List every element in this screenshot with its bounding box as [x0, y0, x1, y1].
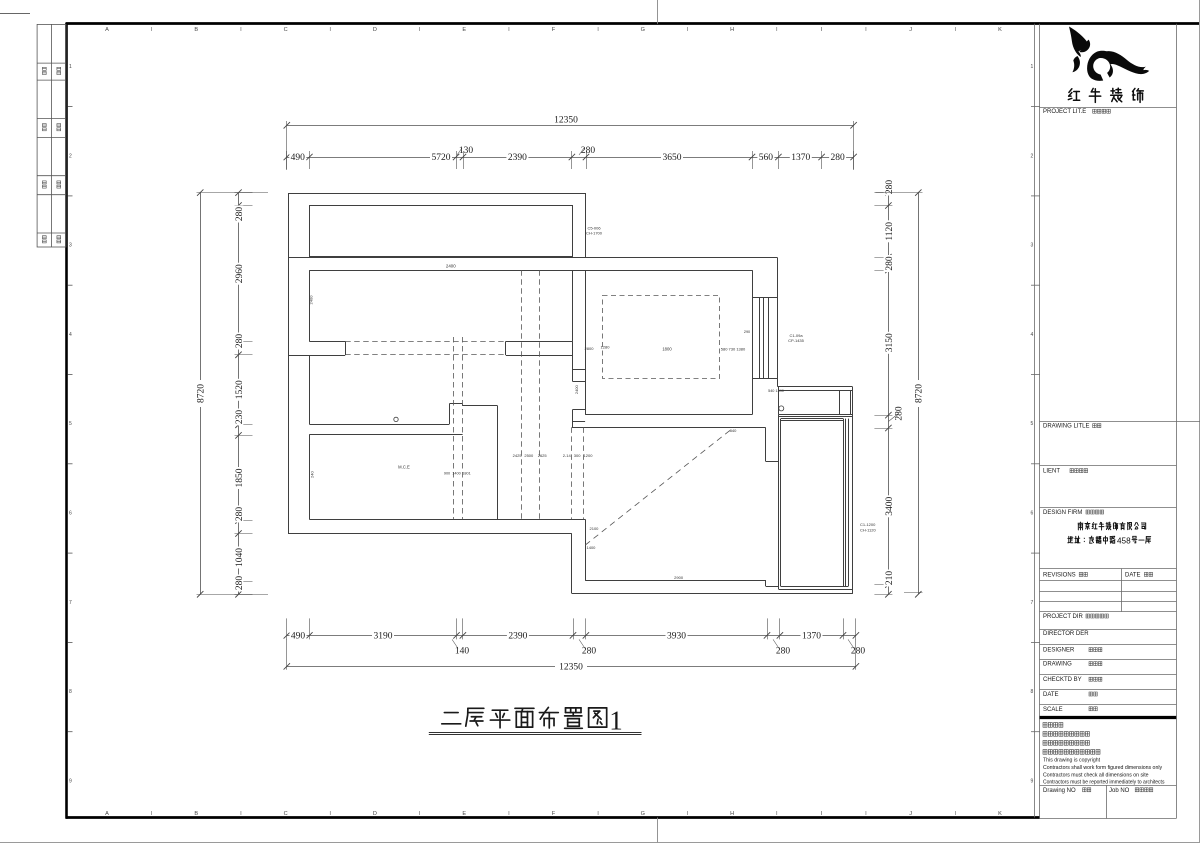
svg-text:F: F [552, 811, 556, 817]
svg-text:2390: 2390 [508, 632, 527, 642]
svg-text:1200: 1200 [584, 453, 594, 458]
svg-text:8720: 8720 [197, 384, 207, 403]
svg-text:6: 6 [69, 511, 72, 517]
svg-text:J: J [909, 811, 912, 817]
svg-text:2: 2 [1031, 153, 1034, 159]
svg-text:4: 4 [69, 332, 72, 338]
svg-text:2100: 2100 [590, 526, 600, 531]
svg-text:Contractors must be reported i: Contractors must be reported immediately… [1043, 780, 1165, 786]
svg-text:8720: 8720 [915, 384, 925, 403]
svg-text:I: I [240, 811, 241, 817]
svg-text:9: 9 [1031, 778, 1034, 784]
svg-text:DATE: DATE [1125, 572, 1141, 578]
svg-text:CH-1120: CH-1120 [860, 528, 876, 533]
svg-text:280: 280 [885, 256, 895, 271]
svg-text:3150: 3150 [885, 333, 895, 352]
svg-text:I: I [419, 27, 420, 33]
svg-text:2400: 2400 [446, 263, 456, 268]
svg-text:4: 4 [1031, 332, 1034, 338]
svg-text:490: 490 [291, 153, 306, 163]
svg-text:I: I [597, 811, 598, 817]
svg-text:I: I [597, 27, 598, 33]
svg-text:5: 5 [1031, 421, 1034, 427]
svg-text:1040: 1040 [235, 548, 245, 567]
svg-text:8: 8 [1031, 689, 1034, 695]
svg-text:I: I [240, 27, 241, 33]
svg-text:Contractors shall work form fi: Contractors shall work form figured dime… [1043, 765, 1162, 771]
svg-text:I: I [776, 811, 777, 817]
svg-text:2900: 2900 [674, 575, 684, 580]
svg-text:2-14: 2-14 [563, 453, 572, 458]
svg-text:C: C [284, 27, 288, 33]
svg-text:280: 280 [851, 646, 866, 656]
svg-text:This drawing is copyright: This drawing is copyright [1043, 758, 1101, 764]
svg-text:1520: 1520 [235, 380, 245, 399]
svg-text:K: K [998, 811, 1002, 817]
svg-text:PROJECT LIT.E: PROJECT LIT.E [1043, 109, 1086, 115]
svg-text:5: 5 [69, 421, 72, 427]
svg-text:900: 900 [444, 472, 450, 476]
svg-text:1: 1 [1031, 64, 1034, 70]
svg-text:290: 290 [744, 330, 750, 334]
svg-text:C1-1200: C1-1200 [860, 522, 876, 527]
svg-text:I: I [865, 27, 866, 33]
svg-text:210: 210 [885, 571, 895, 586]
svg-text:280: 280 [830, 153, 845, 163]
svg-text:1850: 1850 [235, 468, 245, 487]
svg-text:280: 280 [235, 334, 245, 349]
svg-text:1370: 1370 [802, 632, 821, 642]
svg-text:12350: 12350 [554, 116, 578, 126]
svg-text:1800: 1800 [662, 347, 672, 352]
svg-text:E: E [462, 27, 466, 33]
svg-text:2800: 2800 [585, 346, 595, 351]
svg-text:1: 1 [69, 64, 72, 70]
svg-text:7: 7 [1031, 600, 1034, 606]
svg-text:840: 840 [730, 428, 737, 433]
svg-text:12350: 12350 [559, 663, 583, 673]
svg-text:G: G [641, 27, 645, 33]
svg-text:I: I [508, 27, 509, 33]
svg-text:I: I [955, 811, 956, 817]
svg-text:I: I [330, 27, 331, 33]
svg-text:I: I [419, 811, 420, 817]
svg-text:DRAWING LITLE: DRAWING LITLE [1043, 424, 1089, 430]
svg-text:I: I [508, 811, 509, 817]
svg-text:DESIGN FIRM: DESIGN FIRM [1043, 510, 1082, 516]
svg-text:130: 130 [459, 146, 474, 156]
svg-text:PROJECT DIR: PROJECT DIR [1043, 614, 1084, 620]
svg-text:1400: 1400 [587, 545, 597, 550]
svg-text:280: 280 [235, 576, 245, 591]
svg-text:7: 7 [69, 600, 72, 606]
svg-text:CH-1700: CH-1700 [586, 231, 603, 236]
svg-text:2625: 2625 [538, 453, 548, 458]
svg-text:458: 458 [1117, 536, 1131, 545]
svg-text:3650: 3650 [663, 153, 682, 163]
svg-text:5720: 5720 [432, 153, 451, 163]
svg-text:2390: 2390 [508, 153, 527, 163]
svg-text:2960: 2960 [235, 264, 245, 283]
svg-text:3930: 3930 [667, 632, 686, 642]
svg-text:I: I [151, 27, 152, 33]
svg-text:D: D [373, 27, 377, 33]
svg-text:I: I [865, 811, 866, 817]
svg-text:1120: 1120 [885, 222, 895, 241]
svg-text:B: B [194, 811, 198, 817]
svg-text:1370: 1370 [791, 153, 810, 163]
svg-text:F: F [552, 27, 556, 33]
svg-text:G: G [641, 811, 645, 817]
svg-text:230: 230 [235, 410, 245, 425]
svg-text:280: 280 [885, 180, 895, 195]
svg-text:Drawing NO: Drawing NO [1043, 788, 1076, 794]
svg-text:DATE: DATE [1043, 692, 1059, 698]
svg-text:280: 280 [776, 646, 791, 656]
svg-text:REVISIONS: REVISIONS [1043, 572, 1076, 578]
svg-text:2500: 2500 [524, 453, 534, 458]
svg-text:2400: 2400 [574, 384, 579, 394]
svg-text:C: C [284, 811, 288, 817]
svg-text:LIENT: LIENT [1043, 469, 1060, 475]
svg-text:540 1390: 540 1390 [768, 389, 784, 393]
svg-text:H: H [730, 27, 734, 33]
svg-text:2425: 2425 [513, 453, 523, 458]
svg-text:Job NO: Job NO [1109, 788, 1130, 794]
svg-text:1801: 1801 [462, 472, 470, 476]
svg-text:280: 280 [235, 507, 245, 522]
svg-text:E: E [462, 811, 466, 817]
svg-text:2400: 2400 [309, 295, 314, 305]
svg-text:280: 280 [895, 406, 905, 421]
svg-text:280: 280 [235, 207, 245, 222]
svg-text:240: 240 [309, 470, 314, 477]
svg-text:9: 9 [69, 778, 72, 784]
svg-text:1400: 1400 [452, 472, 460, 476]
svg-text:DIRECTOR DER: DIRECTOR DER [1043, 631, 1089, 637]
svg-text:3400: 3400 [885, 497, 895, 516]
svg-text:I: I [687, 811, 688, 817]
svg-text:280: 280 [581, 146, 596, 156]
svg-text:CP-1435: CP-1435 [788, 338, 805, 343]
svg-text:490: 490 [291, 632, 306, 642]
svg-text:300: 300 [574, 453, 581, 458]
svg-text:DESIGNER: DESIGNER [1043, 648, 1075, 654]
svg-text:A: A [105, 27, 109, 33]
svg-text:580 730 1380: 580 730 1380 [721, 347, 746, 352]
svg-text:DRAWING: DRAWING [1043, 662, 1072, 668]
svg-text:I: I [687, 27, 688, 33]
svg-text:140: 140 [455, 646, 470, 656]
svg-text:K: K [998, 27, 1002, 33]
svg-text:J: J [909, 27, 912, 33]
svg-text:3: 3 [69, 243, 72, 249]
svg-text:I: I [151, 811, 152, 817]
svg-text:2: 2 [69, 153, 72, 159]
svg-text:1: 1 [609, 706, 623, 736]
svg-text:6: 6 [1031, 511, 1034, 517]
svg-text:560: 560 [759, 153, 774, 163]
svg-text:280: 280 [582, 646, 597, 656]
svg-text:Contractors must check all dim: Contractors must check all dimensions on… [1043, 773, 1149, 779]
svg-text:8: 8 [69, 689, 72, 695]
svg-text:I: I [776, 27, 777, 33]
svg-text:M.C.E: M.C.E [398, 465, 410, 470]
svg-text:I: I [955, 27, 956, 33]
svg-text:A: A [105, 811, 109, 817]
svg-text:CHECKTD BY: CHECKTD BY [1043, 677, 1082, 683]
svg-text:3190: 3190 [374, 632, 393, 642]
svg-text:I: I [330, 811, 331, 817]
svg-text:B: B [194, 27, 198, 33]
svg-text:SCALE: SCALE [1043, 707, 1063, 713]
svg-text:H: H [730, 811, 734, 817]
svg-text:1280: 1280 [601, 345, 611, 350]
svg-text:3: 3 [1031, 243, 1034, 249]
svg-text:D: D [373, 811, 377, 817]
